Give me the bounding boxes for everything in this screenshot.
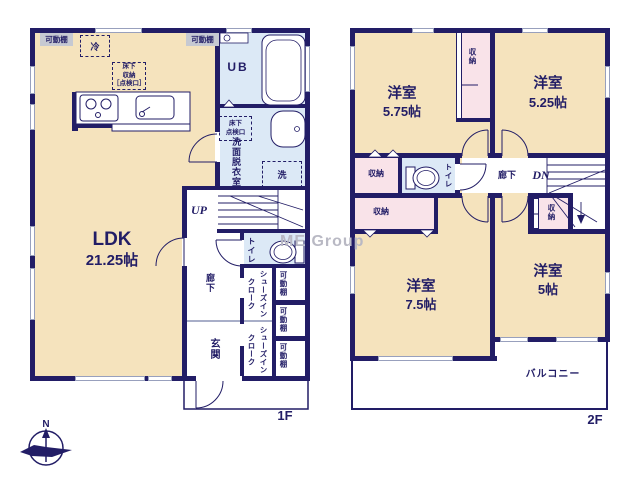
- room-label-ldk: LDK: [62, 229, 162, 251]
- ub-counter: [220, 33, 248, 43]
- room-label-entrance: 玄関: [206, 336, 219, 362]
- up-label: UP: [186, 203, 212, 218]
- room-label-hallway-1f: 廊下: [203, 272, 215, 294]
- storage-label-top: 収納: [466, 46, 477, 66]
- bathtub: [262, 35, 305, 105]
- floor-plan-canvas: 冷 床下 収納 ［点検口］ 床下 点検口 洗 可動棚 可動棚 LDK 21.25…: [0, 0, 640, 480]
- room-label-ub: UB: [220, 60, 256, 76]
- room-size-bedroom3: 7.5帖: [389, 297, 453, 312]
- room-label-toilet-2f: トイレ: [442, 162, 453, 190]
- shelf-label: 可動棚: [278, 270, 288, 298]
- dn-arrow: [577, 215, 585, 224]
- storage-label-2: 収納: [367, 207, 395, 218]
- entrance-porch: [184, 381, 308, 409]
- compass-north-label: N: [38, 419, 54, 431]
- room-label-sic-2: シューズインクローク: [243, 324, 269, 376]
- compass-north-icon: [20, 428, 72, 465]
- balcony-label: バルコニー: [518, 369, 588, 383]
- shelf-box: 可動棚: [40, 33, 73, 46]
- room-label-bedroom4: 洋室: [520, 264, 576, 281]
- storage-label-3: 収納: [545, 202, 556, 222]
- room-label-hallway-2f: 廊下: [494, 170, 520, 183]
- room-size-ldk: 21.25帖: [62, 252, 162, 269]
- staircase-1f: [218, 190, 303, 229]
- underfloor-storage-label: 床下 収納 ［点検口］: [113, 63, 145, 88]
- watermark: ME Group: [280, 233, 364, 251]
- room-size-bedroom4: 5帖: [516, 282, 580, 297]
- room-size-bedroom1: 5.75帖: [370, 104, 434, 119]
- washbasin: [271, 111, 305, 147]
- fridge-label: 冷: [90, 40, 99, 53]
- shelf-box: 可動棚: [186, 33, 219, 46]
- room-label-toilet-1f: トイレ: [245, 236, 256, 264]
- shelf-label: 可動棚: [278, 306, 288, 334]
- room-label-bedroom3: 洋室: [393, 279, 449, 296]
- storage-label-1: 収納: [362, 169, 390, 180]
- shelf-label: 可動棚: [278, 342, 288, 370]
- room-label-sic-1: シューズインクローク: [243, 268, 269, 320]
- floor-label-1f: 1F: [270, 408, 300, 424]
- floor-label-2f: 2F: [580, 412, 610, 428]
- fridge-space: 冷: [80, 35, 110, 57]
- dn-label: DN: [528, 168, 554, 183]
- folding-door-markers: [223, 100, 434, 237]
- kitchen-counter: [76, 92, 190, 131]
- washer-label: 洗: [277, 168, 286, 181]
- room-size-bedroom2: 5.25帖: [516, 95, 580, 110]
- room-label-washroom: 洗面脱衣室: [227, 134, 241, 190]
- room-label-bedroom2: 洋室: [520, 76, 576, 93]
- toilet-fixture-2f: [406, 167, 439, 189]
- underfloor-storage: 床下 収納 ［点検口］: [112, 62, 146, 90]
- washer-space: 洗: [262, 161, 302, 188]
- room-label-bedroom1: 洋室: [374, 86, 430, 103]
